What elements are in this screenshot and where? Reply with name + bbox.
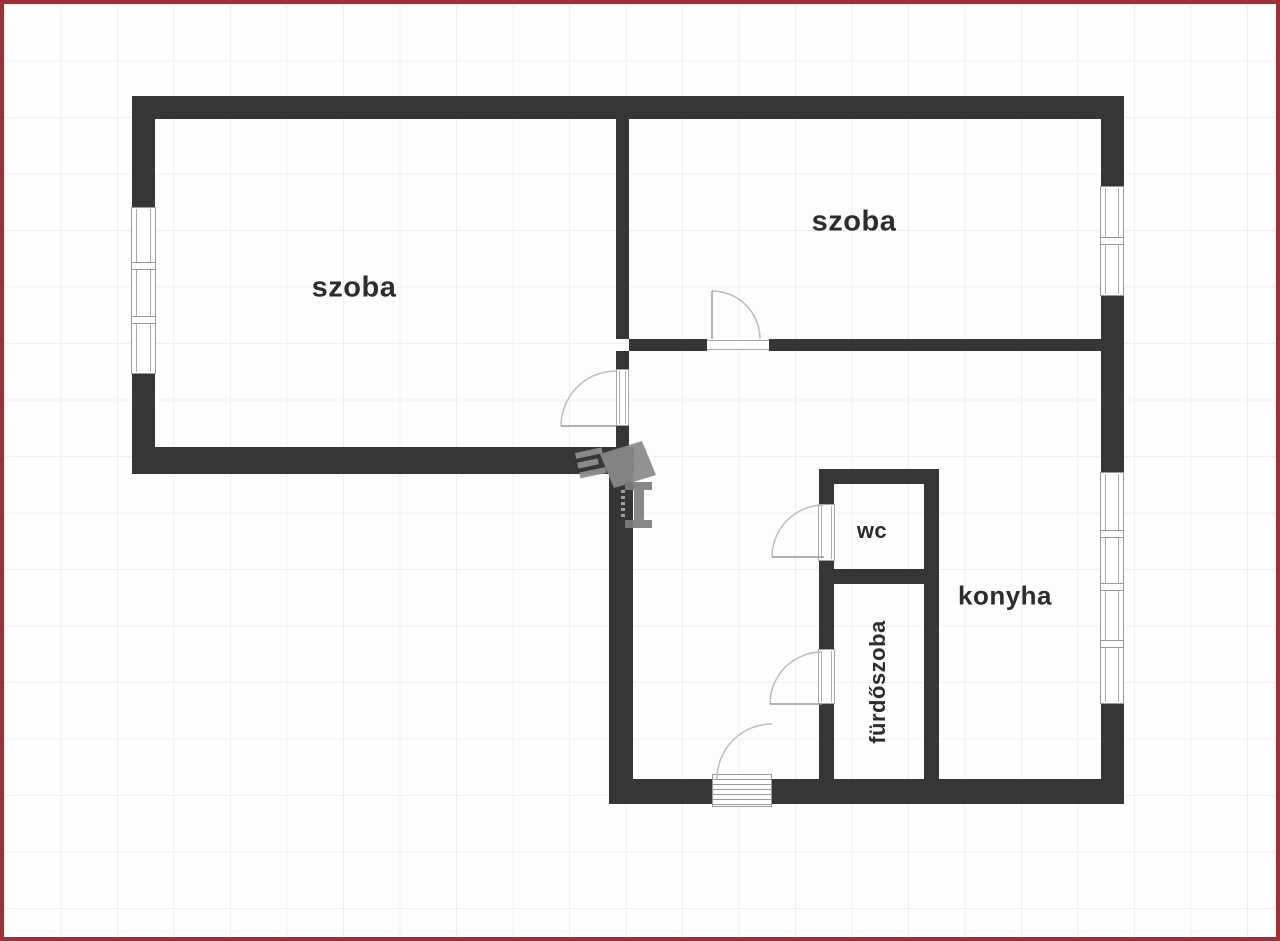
- door-arc-wc: [772, 505, 824, 557]
- window-left-wall: [131, 207, 156, 374]
- wall-hall-left: [609, 474, 633, 779]
- wall-left-lower: [132, 374, 155, 447]
- door-panel-wc: [818, 504, 835, 561]
- entrance-door-threshold: [712, 774, 772, 807]
- wall-top: [132, 96, 1124, 119]
- room-label-wc: wc: [857, 518, 887, 544]
- room-label-szoba-left: szoba: [312, 272, 397, 305]
- wall-wc-top: [819, 469, 939, 484]
- room-label-furdoszoba: fürdőszoba: [865, 620, 891, 744]
- door-panel-bath: [818, 649, 835, 704]
- wall-szoba-right-bottom-a: [629, 339, 707, 351]
- wall-bath-left-lower: [819, 704, 834, 779]
- window-divider: [1101, 530, 1123, 538]
- wall-divider-upper: [616, 119, 629, 339]
- door-panel-szoba-right: [707, 340, 769, 350]
- door-arc-entrance: [717, 724, 772, 779]
- wall-right-b: [1101, 296, 1124, 472]
- door-arc-bath: [770, 652, 822, 704]
- window-divider: [1101, 237, 1123, 245]
- wall-bottom-a: [609, 779, 712, 804]
- wall-right-c: [1101, 704, 1124, 779]
- wall-right-a: [1101, 119, 1124, 186]
- window-divider: [132, 316, 155, 324]
- wall-szoba-left-bottom: [132, 447, 634, 474]
- window-right-lower: [1100, 472, 1124, 704]
- floor-plan-canvas: szoba szoba wc konyha fürdőszoba: [0, 0, 1280, 941]
- window-divider: [1101, 640, 1123, 648]
- door-panel-hall: [616, 369, 629, 426]
- wall-wc-bath-divider: [819, 569, 939, 584]
- room-label-szoba-right: szoba: [812, 206, 897, 239]
- door-arc-szoba-right: [712, 291, 760, 339]
- window-divider: [132, 262, 155, 270]
- wall-szoba-right-bottom-b: [769, 339, 1101, 351]
- door-arc-hall: [561, 371, 616, 426]
- wall-left-upper: [132, 119, 155, 207]
- window-divider: [1101, 583, 1123, 591]
- room-label-konyha: konyha: [958, 581, 1052, 612]
- window-right-upper: [1100, 186, 1124, 296]
- wall-divider-mid-a: [616, 351, 629, 369]
- wall-bottom-b: [772, 779, 1124, 804]
- wall-wc-left-a: [819, 469, 834, 504]
- wall-wc-bath-right: [924, 469, 939, 779]
- wall-divider-mid-b: [616, 426, 629, 447]
